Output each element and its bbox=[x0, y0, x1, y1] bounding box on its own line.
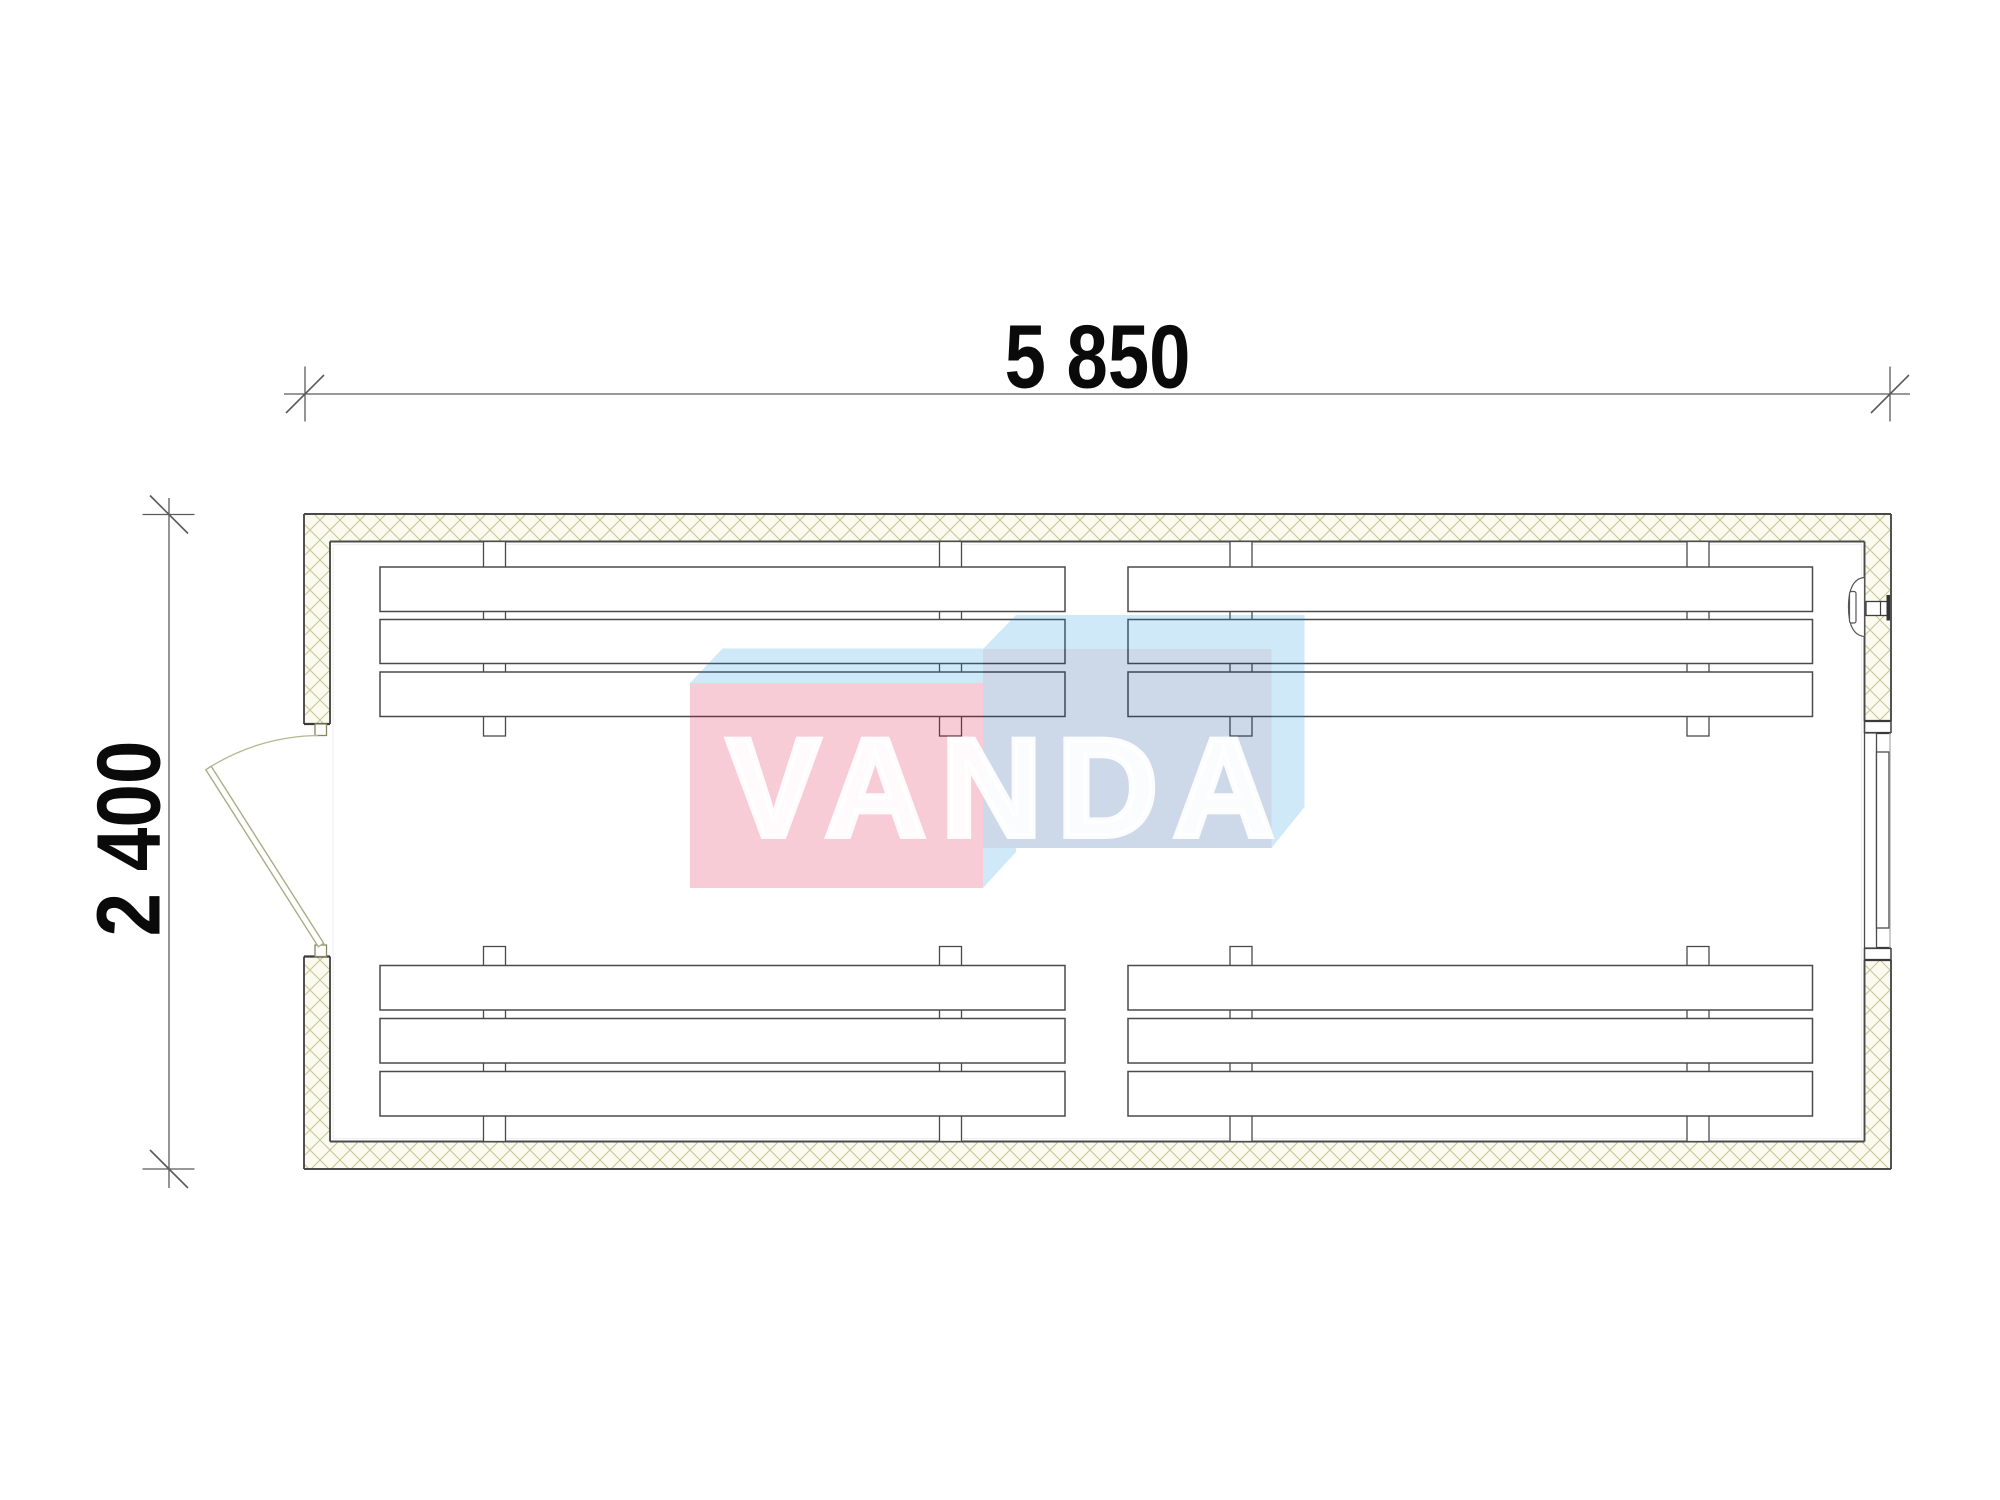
svg-text:2 400: 2 400 bbox=[78, 741, 178, 937]
svg-text:5 850: 5 850 bbox=[1005, 307, 1191, 407]
svg-text:VANDA: VANDA bbox=[727, 709, 1289, 866]
